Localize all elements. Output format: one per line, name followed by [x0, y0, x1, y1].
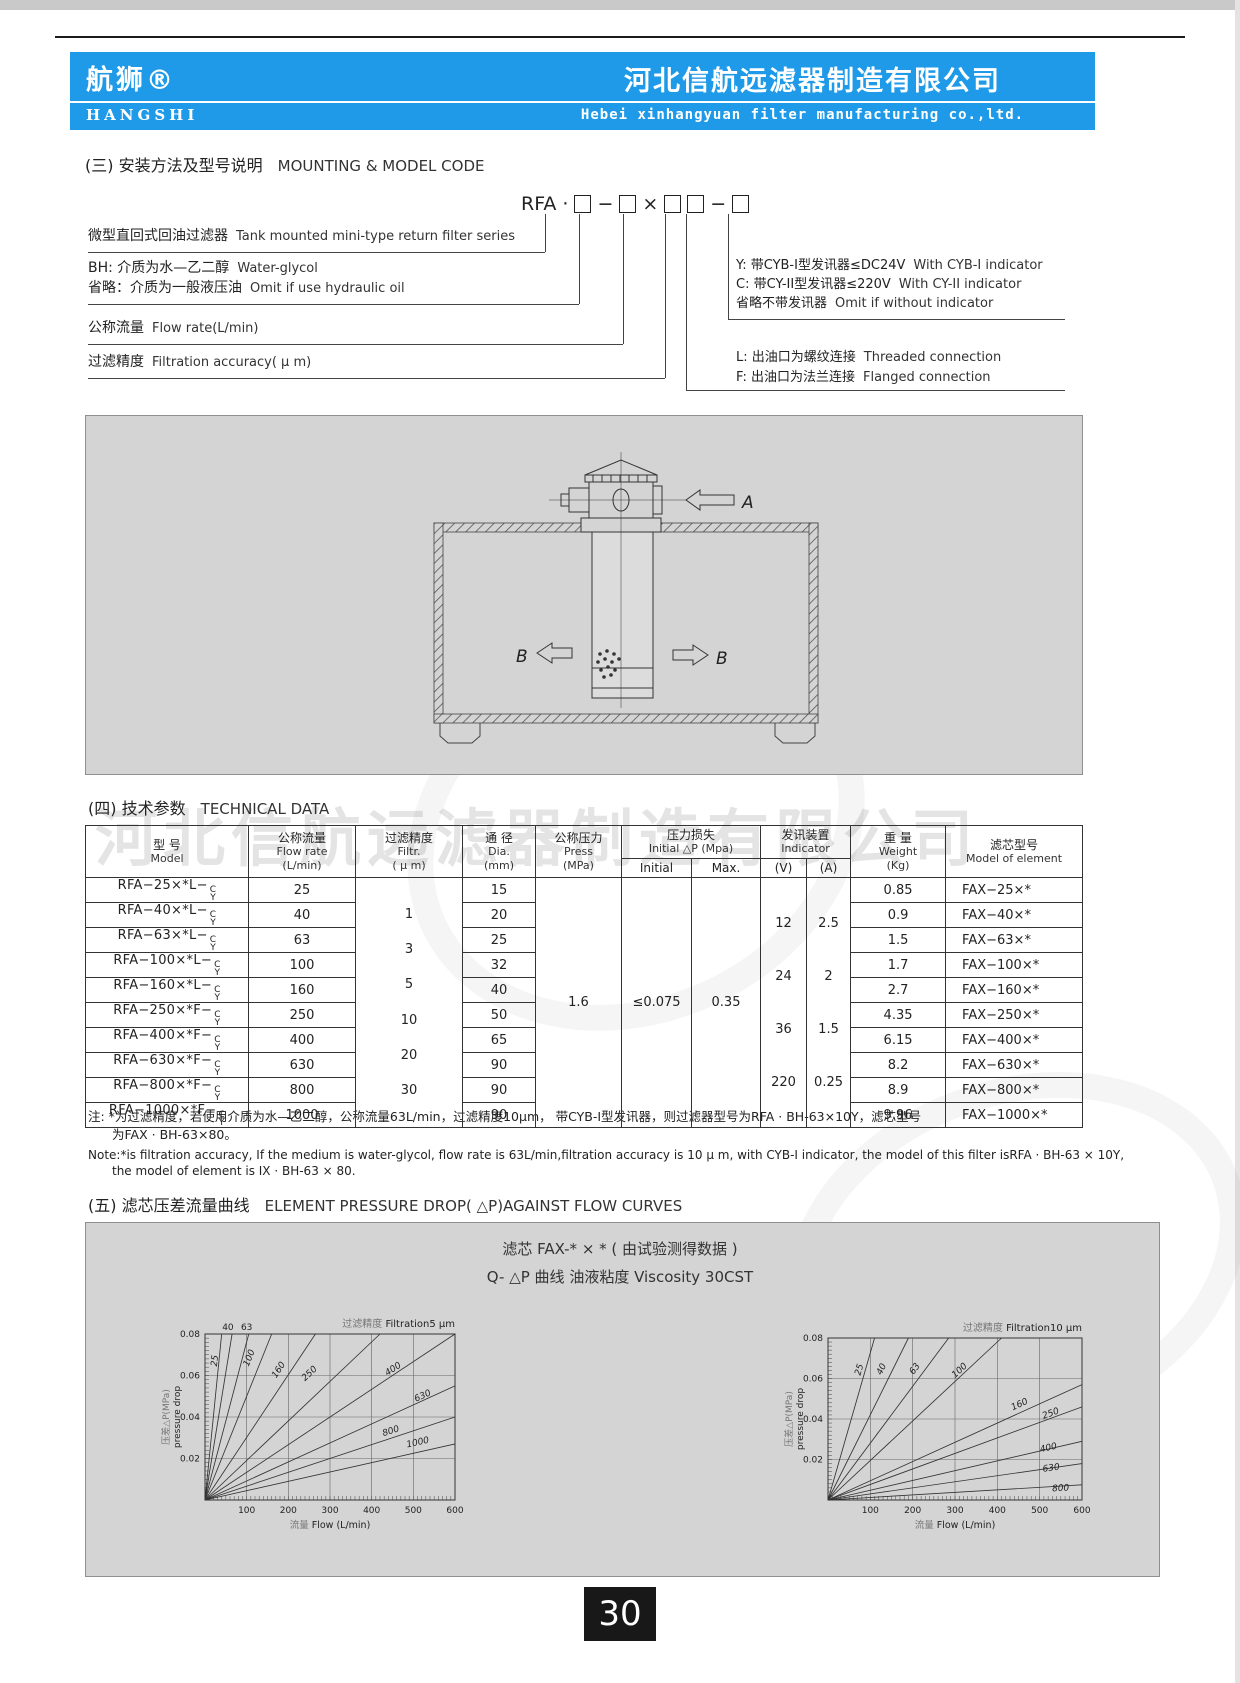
cell-model: RFA−630×*F−CY	[86, 1053, 249, 1078]
connector-line	[623, 214, 624, 344]
code-label-indicator: Y: 带CYB-I型发讯器≤DC24VWith CYB-I indicator …	[728, 256, 1065, 320]
inlet-label: A	[741, 493, 754, 513]
label-en: Omit if without indicator	[835, 296, 993, 311]
document-page: 河北信航远滤器制造有限公司 航狮® HANGSHI 河北信航远滤器制造有限公司 …	[0, 0, 1240, 1683]
x-tick-label: 100	[238, 1506, 255, 1516]
filter-element	[592, 532, 653, 698]
table-row: RFA−25×*L−CY25135102030151.6≤0.0750.3512…	[86, 878, 1083, 903]
x-tick-label: 100	[862, 1506, 879, 1516]
cell-weight: 4.35	[851, 1003, 946, 1028]
section5-heading: (五) 滤芯压差流量曲线 ELEMENT PRESSURE DROP( △P)A…	[88, 1192, 682, 1216]
label-en: With CYB-I indicator	[913, 258, 1042, 273]
table-header: 型 号Model 公称流量Flow rate(L/min) 过滤精度Filtr.…	[86, 826, 1083, 878]
section3-heading-en: MOUNTING & MODEL CODE	[278, 157, 485, 175]
cell-element: FAX−25×*	[946, 878, 1083, 903]
x-tick-label: 300	[946, 1506, 963, 1516]
cell-element: FAX−160×*	[946, 978, 1083, 1003]
cell-model: RFA−1000×*F−CY	[86, 1103, 249, 1128]
cell-indicator-volt: 122436220	[761, 878, 807, 1128]
y-axis-label-cn: 压差△P(MPa)	[160, 1389, 172, 1445]
cell-diameter: 40	[463, 978, 536, 1003]
code-box-filtration	[664, 195, 681, 213]
scan-edge-right	[1235, 0, 1240, 1683]
cell-diameter: 90	[463, 1053, 536, 1078]
series-label: 63	[908, 1361, 923, 1376]
model-code-dash2: −	[710, 193, 726, 215]
tank-foot-right	[775, 723, 815, 743]
label-cn: Y: 带CYB-I型发讯器≤DC24V	[736, 258, 905, 273]
cell-pressure: 1.6	[536, 878, 622, 1128]
code-box-flow	[619, 195, 636, 213]
cell-diameter: 20	[463, 903, 536, 928]
cell-flow: 25	[249, 878, 356, 903]
connector-line	[545, 214, 546, 252]
connector-line	[665, 214, 666, 378]
label-cn: F: 出油口为法兰连接	[736, 370, 855, 385]
y-axis-label-en: pressure drop	[173, 1386, 183, 1448]
x-tick-label: 500	[405, 1506, 422, 1516]
banner-divider	[70, 101, 1095, 103]
cell-weight: 1.5	[851, 928, 946, 953]
x-axis-label: 流量 Flow (L/min)	[915, 1519, 996, 1531]
note-en-line2: the model of element is IX · BH-63 × 80.	[112, 1164, 356, 1178]
y-tick-label: 0.08	[803, 1334, 823, 1344]
outlet-label-right: B	[716, 649, 728, 669]
y-tick-label: 0.06	[803, 1375, 823, 1385]
label-cn: 过滤精度	[88, 354, 144, 370]
cell-flow: 400	[249, 1028, 356, 1053]
cell-diameter: 15	[463, 878, 536, 903]
code-box-connection	[687, 195, 704, 213]
cell-diameter: 25	[463, 928, 536, 953]
code-box-indicator	[732, 195, 749, 213]
brand-name-en: HANGSHI	[86, 106, 198, 124]
cell-flow: 100	[249, 953, 356, 978]
series-label: 250	[300, 1364, 320, 1383]
cell-flow: 40	[249, 903, 356, 928]
col-header-weight: 重 量Weight(Kg)	[851, 826, 946, 878]
label-cn: 省略：介质为一般液压油	[88, 280, 242, 296]
section5-heading-cn: (五) 滤芯压差流量曲线	[88, 1196, 250, 1215]
col-header-diameter: 通 径Dia.(mm)	[463, 826, 536, 878]
label-cn: 省略不带发讯器	[736, 296, 827, 311]
col-header-model: 型 号Model	[86, 826, 249, 878]
cell-diameter: 90	[463, 1078, 536, 1103]
col-header-pressure: 公称压力Press(MPa)	[536, 826, 622, 878]
tank-foot-left	[440, 723, 480, 743]
cell-element: FAX−63×*	[946, 928, 1083, 953]
col-header-filtration: 过滤精度Filtr.( μ m)	[356, 826, 463, 878]
cell-flow: 63	[249, 928, 356, 953]
technical-data-table: 型 号Model 公称流量Flow rate(L/min) 过滤精度Filtr.…	[85, 825, 1083, 1128]
cell-model: RFA−40×*L−CY	[86, 903, 249, 928]
cell-element: FAX−630×*	[946, 1053, 1083, 1078]
series-label: 400	[1039, 1442, 1058, 1456]
label-en: Tank mounted mini-type return filter ser…	[236, 229, 515, 244]
cell-weight: 8.2	[851, 1053, 946, 1078]
cell-dp-initial: ≤0.075	[622, 878, 692, 1128]
pressure-drop-chart-5um: 25406310016025040063080010000.020.040.06…	[148, 1248, 508, 1533]
header-banner: 航狮® HANGSHI 河北信航远滤器制造有限公司 Hebei xinhangy…	[70, 52, 1095, 130]
col-header-pressure-drop: 压力损失Initial △P (Mpa)	[622, 826, 761, 859]
x-tick-label: 200	[280, 1506, 297, 1516]
subcol-ind-volt: (V)	[761, 859, 807, 878]
x-tick-label: 300	[321, 1506, 338, 1516]
cell-filtration: 135102030	[356, 878, 463, 1128]
section5-heading-en: ELEMENT PRESSURE DROP( △P)AGAINST FLOW C…	[265, 1197, 683, 1215]
x-tick-label: 500	[1031, 1506, 1048, 1516]
series-label: 630	[413, 1388, 433, 1404]
code-label-flow: 公称流量Flow rate(L/min)	[88, 318, 623, 345]
model-code: RFA·−×−	[518, 192, 752, 215]
label-cn: 公称流量	[88, 320, 144, 336]
page-number: 30	[584, 1587, 656, 1641]
col-header-flow: 公称流量Flow rate(L/min)	[249, 826, 356, 878]
code-label-series: 微型直回式回油过滤器Tank mounted mini-type return …	[88, 226, 545, 253]
cell-diameter: 50	[463, 1003, 536, 1028]
outlet-arrow-right-icon	[673, 645, 708, 665]
series-label: 630	[1042, 1462, 1061, 1474]
model-code-times: ×	[642, 193, 658, 215]
chart-title: 过滤精度 Filtration10 μm	[963, 1321, 1082, 1334]
y-tick-label: 0.06	[180, 1372, 200, 1382]
x-tick-label: 200	[904, 1506, 921, 1516]
note-en-line1: Note:*is filtration accuracy, If the med…	[88, 1148, 1124, 1162]
subcol-dp-initial: Initial	[622, 859, 692, 878]
cell-dp-max: 0.35	[692, 878, 761, 1128]
y-tick-label: 0.08	[180, 1330, 200, 1340]
cell-weight: 9.96	[851, 1103, 946, 1128]
label-en: Omit if use hydraulic oil	[250, 281, 405, 296]
x-tick-label: 400	[363, 1506, 380, 1516]
filter-head	[561, 460, 662, 532]
subcol-dp-max: Max.	[692, 859, 761, 878]
y-tick-label: 0.02	[803, 1456, 823, 1466]
cell-indicator-amp: 2.521.50.25	[807, 878, 851, 1128]
cell-model: RFA−25×*L−CY	[86, 878, 249, 903]
label-en: Flanged connection	[863, 370, 991, 385]
col-header-element: 滤芯型号Model of element	[946, 826, 1083, 878]
cell-element: FAX−400×*	[946, 1028, 1083, 1053]
section3-heading: (三) 安装方法及型号说明 MOUNTING & MODEL CODE	[85, 152, 485, 176]
cell-weight: 1.7	[851, 953, 946, 978]
label-cn: 微型直回式回油过滤器	[88, 228, 228, 244]
mounting-drawing: A B B	[86, 416, 1082, 774]
series-label: 160	[270, 1360, 288, 1380]
code-label-filtration: 过滤精度Filtration accuracy( μ m)	[88, 352, 665, 379]
cell-model: RFA−63×*L−CY	[86, 928, 249, 953]
cell-weight: 2.7	[851, 978, 946, 1003]
inlet-arrow-icon	[686, 490, 734, 510]
col-header-indicator: 发讯装置Indicator	[761, 826, 851, 859]
label-cn: L: 出油口为螺纹连接	[736, 350, 856, 365]
section4-heading-cn: (四) 技术参数	[88, 799, 186, 818]
label-en: Threaded connection	[864, 350, 1001, 365]
label-en: Water-glycol	[237, 261, 318, 276]
cell-element: FAX−100×*	[946, 953, 1083, 978]
company-name-en: Hebei xinhangyuan filter manufacturing c…	[520, 107, 1085, 123]
cell-diameter: 65	[463, 1028, 536, 1053]
cell-flow: 1000	[249, 1103, 356, 1128]
series-label: 400	[384, 1361, 404, 1379]
cell-flow: 160	[249, 978, 356, 1003]
cell-weight: 6.15	[851, 1028, 946, 1053]
series-label: 250	[1041, 1406, 1061, 1421]
brand-name-cn: 航狮®	[86, 58, 176, 97]
outlet-arrow-left-icon	[537, 643, 572, 663]
code-label-medium: BH: 介质为水—乙二醇Water-glycol 省略：介质为一般液压油Omit…	[88, 258, 579, 305]
cell-weight: 0.9	[851, 903, 946, 928]
x-tick-label: 400	[989, 1506, 1006, 1516]
code-label-connection: L: 出油口为螺纹连接Threaded connection F: 出油口为法兰…	[686, 348, 1065, 391]
outlet-label-left: B	[516, 647, 528, 667]
cell-model: RFA−100×*L−CY	[86, 953, 249, 978]
label-en: With CY-II indicator	[899, 277, 1022, 292]
top-rule-line	[55, 36, 1185, 38]
series-label: 25	[210, 1354, 221, 1367]
section4-heading: (四) 技术参数 TECHNICAL DATA	[88, 795, 329, 819]
cell-flow: 800	[249, 1078, 356, 1103]
subcol-ind-amp: (A)	[807, 859, 851, 878]
model-code-dash1: −	[597, 193, 613, 215]
spec-table-body: RFA−25×*L−CY25135102030151.6≤0.0750.3512…	[86, 878, 1083, 1128]
y-tick-label: 0.04	[803, 1415, 823, 1425]
cell-model: RFA−160×*L−CY	[86, 978, 249, 1003]
series-label: 63	[241, 1323, 252, 1333]
cell-model: RFA−800×*F−CY	[86, 1078, 249, 1103]
series-label: 160	[1010, 1397, 1030, 1413]
label-cn: BH: 介质为水—乙二醇	[88, 260, 229, 276]
series-label: 800	[381, 1424, 401, 1439]
cell-model: RFA−400×*F−CY	[86, 1028, 249, 1053]
series-label: 800	[1052, 1483, 1070, 1494]
cell-flow: 250	[249, 1003, 356, 1028]
y-axis-label-en: pressure drop	[796, 1388, 806, 1450]
y-axis-label-cn: 压差△P(MPa)	[783, 1391, 795, 1447]
series-label: 100	[950, 1361, 970, 1380]
scan-edge-top	[0, 0, 1240, 10]
label-en: Flow rate(L/min)	[152, 321, 259, 336]
cell-diameter: 32	[463, 953, 536, 978]
series-label: 40	[875, 1362, 889, 1377]
section4-heading-en: TECHNICAL DATA	[201, 800, 330, 818]
pressure-drop-chart-10um: 2540631001602504006308000.020.040.060.08…	[771, 1248, 1131, 1533]
cell-flow: 630	[249, 1053, 356, 1078]
model-code-dot: ·	[562, 193, 568, 215]
mounting-drawing-panel: A B B	[85, 415, 1083, 775]
technical-data-table-wrap: 型 号Model 公称流量Flow rate(L/min) 过滤精度Filtr.…	[85, 825, 1083, 1128]
x-tick-label: 600	[1073, 1506, 1090, 1516]
cell-weight: 8.9	[851, 1078, 946, 1103]
x-tick-label: 600	[446, 1506, 463, 1516]
chart-title: 过滤精度 Filtration5 μm	[342, 1317, 455, 1330]
cell-element: FAX−250×*	[946, 1003, 1083, 1028]
section3-heading-cn: (三) 安装方法及型号说明	[85, 156, 263, 175]
y-tick-label: 0.04	[180, 1413, 200, 1423]
code-box-medium	[574, 195, 591, 213]
cell-element: FAX−40×*	[946, 903, 1083, 928]
label-en: Filtration accuracy( μ m)	[152, 355, 311, 370]
cell-model: RFA−250×*F−CY	[86, 1003, 249, 1028]
cell-weight: 0.85	[851, 878, 946, 903]
cell-element: FAX−800×*	[946, 1078, 1083, 1103]
company-name-cn: 河北信航远滤器制造有限公司	[540, 59, 1085, 98]
model-code-prefix: RFA	[521, 193, 556, 215]
cell-element: FAX−1000×*	[946, 1103, 1083, 1128]
cell-diameter: 90	[463, 1103, 536, 1128]
label-cn: C: 带CY-II型发讯器≤220V	[736, 277, 891, 292]
y-tick-label: 0.02	[180, 1455, 200, 1465]
x-axis-label: 流量 Flow (L/min)	[290, 1519, 371, 1531]
series-label: 1000	[406, 1436, 431, 1451]
connector-line	[579, 214, 580, 304]
series-label: 40	[222, 1323, 234, 1333]
